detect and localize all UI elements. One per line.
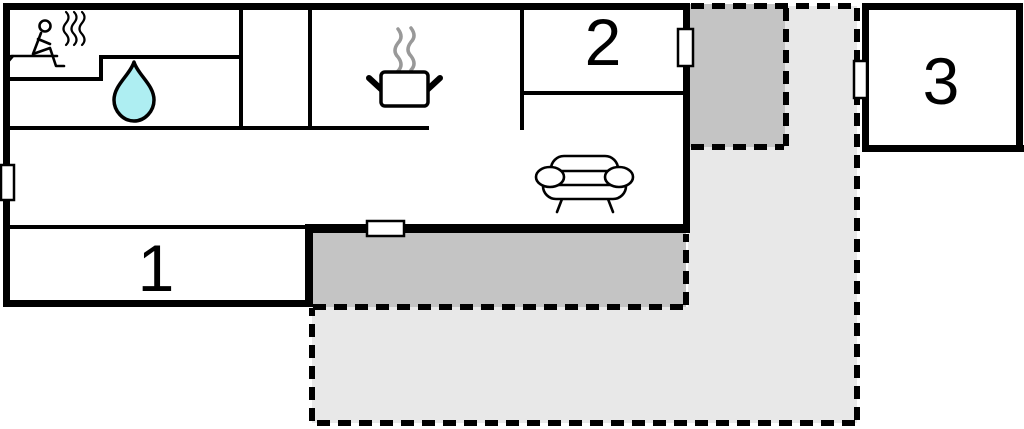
wall-sauna-jog <box>99 57 103 81</box>
terrace-dark-lower <box>312 230 686 307</box>
sauna-person-head <box>40 21 51 32</box>
wall-room3-right <box>1016 3 1023 152</box>
sauna-person-body <box>33 33 64 66</box>
wall-room3-top <box>862 3 1023 10</box>
door-room3 <box>854 61 867 98</box>
room-2-label: 2 <box>585 5 622 79</box>
wall-room1-right <box>305 224 313 307</box>
room-3-label: 3 <box>923 44 960 118</box>
water-drop-icon <box>114 62 154 121</box>
cooking-pot-icon <box>369 28 440 106</box>
wall-room1-top <box>7 225 305 229</box>
wall-room2-south <box>522 91 687 95</box>
wall-bathroom-kitchen-bottom <box>3 126 429 130</box>
pot-body <box>381 72 428 106</box>
pot-steam-lines <box>395 28 414 71</box>
door-living-bottom <box>367 221 404 236</box>
door-living-to-terrace <box>678 29 693 66</box>
wall-bathroom-east <box>239 10 243 130</box>
floor-plan-svg: 1 2 3 <box>0 0 1024 429</box>
wall-sauna-south-left <box>7 77 102 81</box>
wall-sauna-south-right <box>99 55 243 59</box>
wall-room3-bottom <box>862 145 1024 152</box>
sofa-armrest-left <box>536 167 564 187</box>
terrace-dark-upper <box>688 4 785 147</box>
sofa-armrest-right <box>605 167 633 187</box>
wall-left <box>3 3 10 307</box>
floor-plan: 1 2 3 <box>0 0 1024 429</box>
sauna-bench <box>7 56 57 63</box>
wall-closet-east <box>308 10 312 130</box>
wall-living-bottom <box>305 224 690 233</box>
room-1-label: 1 <box>138 231 175 305</box>
wall-room2-west <box>520 10 524 130</box>
sauna-person-icon <box>7 12 85 66</box>
door-left-wall <box>1 165 14 200</box>
sofa-legs <box>557 199 613 212</box>
sauna-steam-lines <box>64 12 85 45</box>
sofa-icon <box>536 156 633 212</box>
